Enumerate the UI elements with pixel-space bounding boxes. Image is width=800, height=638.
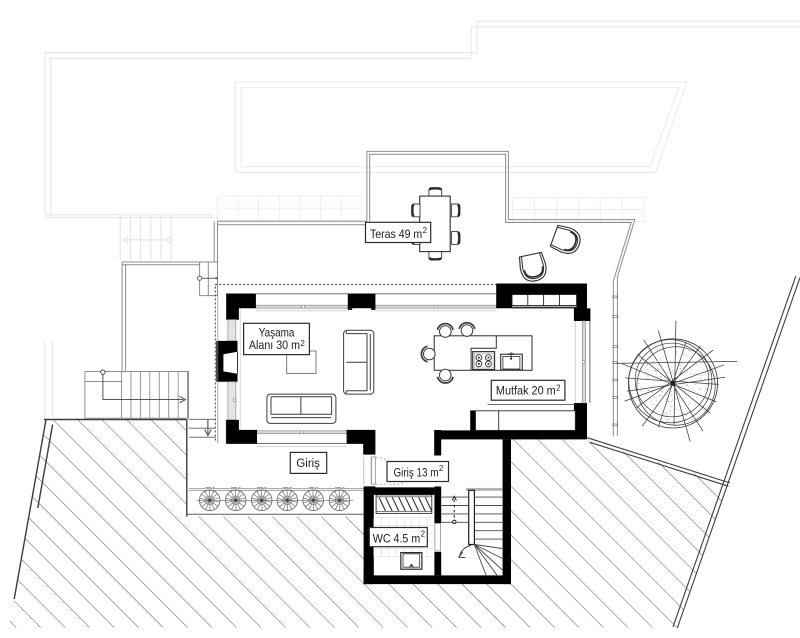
svg-text:Giriş: Giriş bbox=[296, 456, 320, 470]
svg-text:Giriş 13 m: Giriş 13 m bbox=[394, 466, 439, 480]
svg-text:2: 2 bbox=[439, 464, 444, 473]
svg-text:2: 2 bbox=[421, 530, 426, 539]
svg-text:2: 2 bbox=[423, 226, 428, 235]
svg-text:WC 4.5 m: WC 4.5 m bbox=[373, 532, 420, 546]
svg-text:2: 2 bbox=[300, 339, 305, 348]
svg-text:Teras 49 m: Teras 49 m bbox=[370, 227, 422, 241]
svg-text:Mutfak 20 m: Mutfak 20 m bbox=[496, 383, 556, 397]
svg-text:2: 2 bbox=[556, 384, 561, 393]
svg-text:Alanı 30 m: Alanı 30 m bbox=[249, 338, 300, 352]
